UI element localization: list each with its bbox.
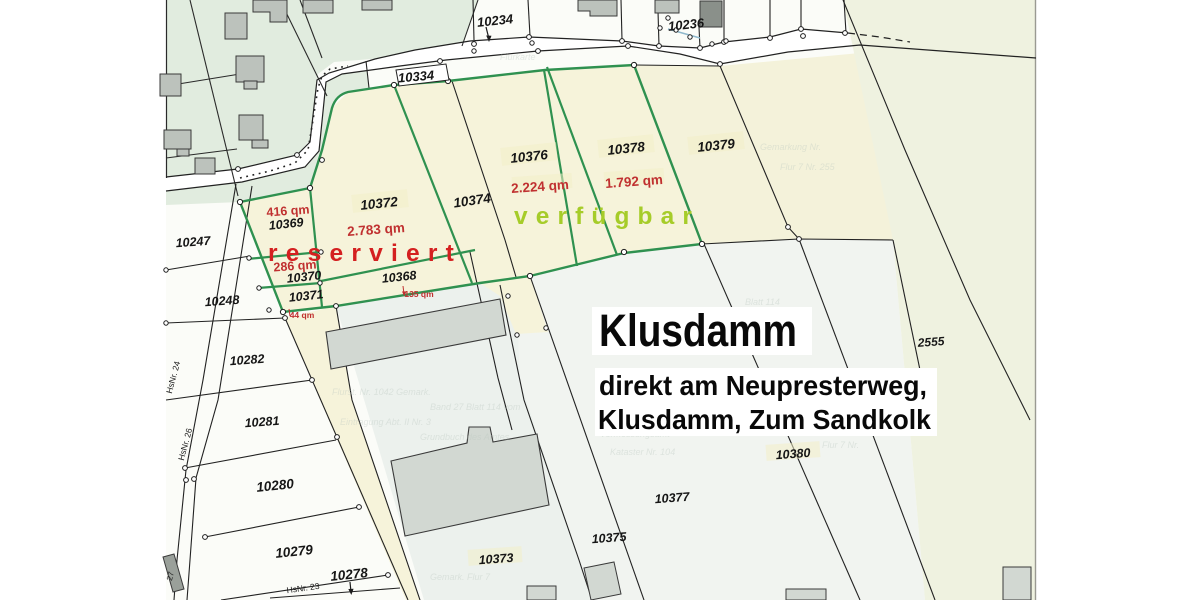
svg-text:Eintragung Abt. II Nr. 3: Eintragung Abt. II Nr. 3: [340, 417, 431, 427]
svg-text:Flur 7 Nr. 255: Flur 7 Nr. 255: [780, 162, 836, 172]
svg-text:10375: 10375: [591, 530, 628, 546]
svg-text:416 qm: 416 qm: [266, 203, 310, 220]
svg-text:Grundbuch des Amtes: Grundbuch des Amtes: [420, 432, 510, 442]
svg-text:10334: 10334: [397, 67, 435, 85]
svg-text:Flurkarte: Flurkarte: [500, 52, 536, 62]
svg-text:44 qm: 44 qm: [290, 310, 315, 320]
svg-text:10373: 10373: [478, 551, 514, 567]
svg-text:Flur 7 Nr.: Flur 7 Nr.: [822, 440, 859, 450]
svg-text:10281: 10281: [244, 414, 280, 430]
svg-text:10282: 10282: [229, 352, 265, 368]
svg-text:10380: 10380: [775, 446, 811, 462]
svg-text:2555: 2555: [916, 334, 945, 350]
svg-text:Gemarkung Nr.: Gemarkung Nr.: [760, 142, 821, 152]
svg-text:Gemark. Flur 7: Gemark. Flur 7: [430, 572, 491, 582]
svg-text:Klusdamm, Zum Sandkolk: Klusdamm, Zum Sandkolk: [598, 404, 931, 435]
svg-text:10247: 10247: [175, 234, 212, 250]
svg-text:10248: 10248: [204, 293, 240, 309]
svg-text:Kataster Nr. 104: Kataster Nr. 104: [610, 447, 675, 457]
svg-text:Flurst. Nr. 1042 Gemark.: Flurst. Nr. 1042 Gemark.: [332, 387, 431, 397]
svg-text:direkt am Neupresterweg,: direkt am Neupresterweg,: [599, 370, 927, 401]
svg-text:Klusdamm: Klusdamm: [599, 305, 797, 356]
svg-text:reserviert: reserviert: [268, 240, 462, 267]
svg-text:Band 27 Blatt 114 vom: Band 27 Blatt 114 vom: [430, 402, 521, 412]
svg-text:verfügbar: verfügbar: [514, 203, 700, 230]
svg-text:135 qm: 135 qm: [404, 289, 434, 299]
svg-text:10377: 10377: [654, 490, 691, 506]
